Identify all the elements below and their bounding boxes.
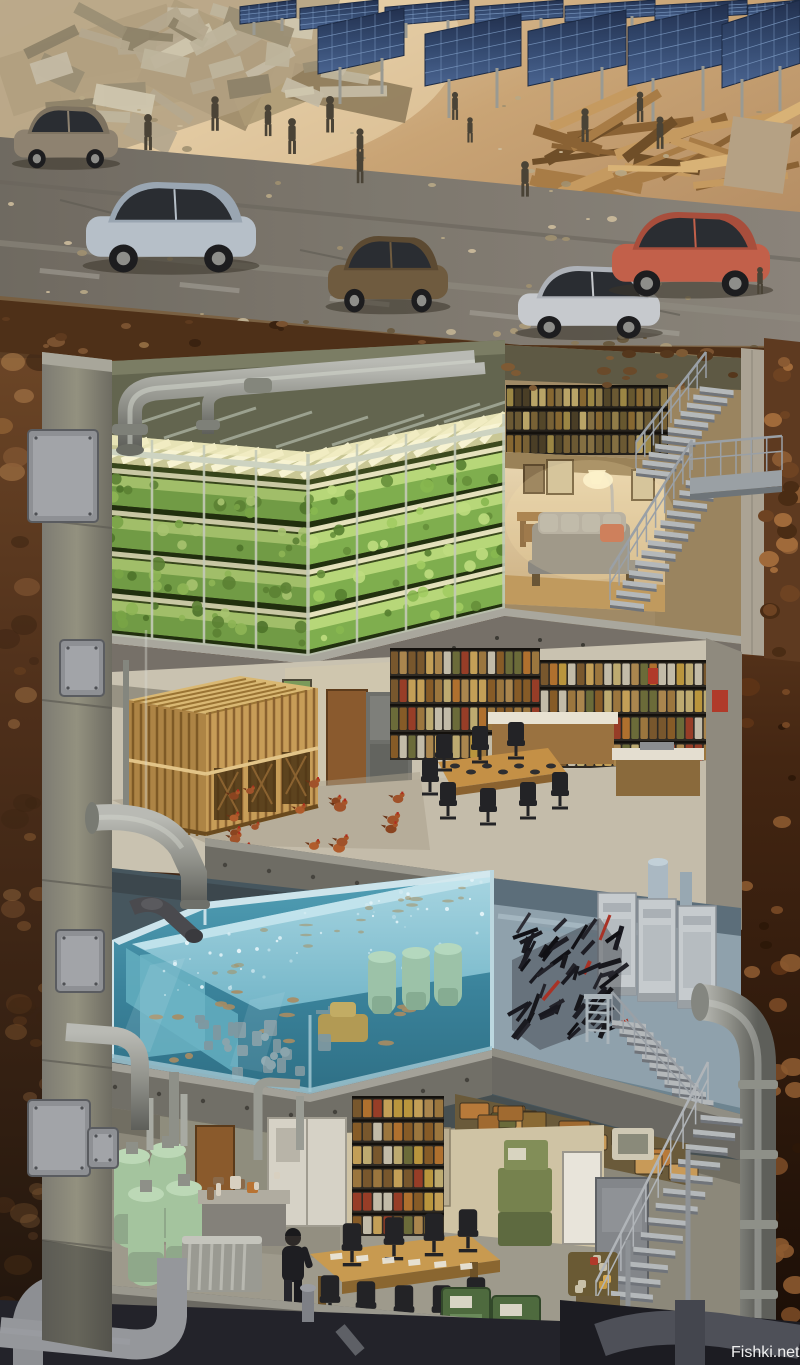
svg-text:Fishki.net: Fishki.net [731,1344,800,1361]
